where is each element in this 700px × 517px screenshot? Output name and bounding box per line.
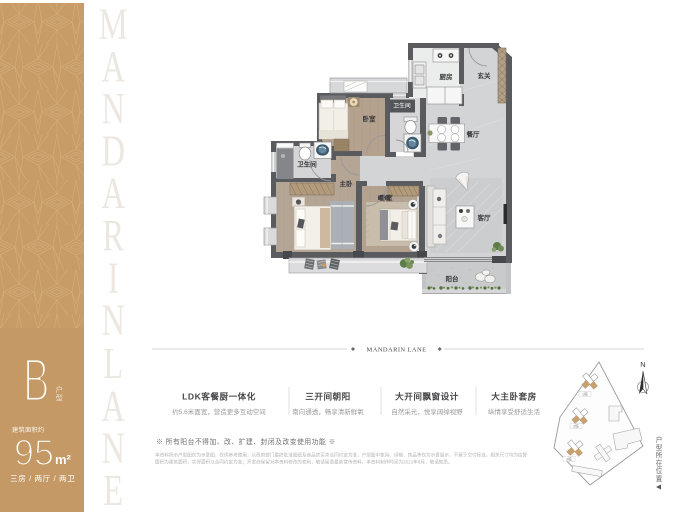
svg-text:B: B	[23, 345, 49, 414]
svg-text:客厅: 客厅	[477, 213, 492, 222]
svg-text:卫生间: 卫生间	[393, 102, 411, 110]
svg-text:A: A	[101, 43, 125, 91]
svg-text:纵情享受舒适生活: 纵情享受舒适生活	[488, 407, 541, 416]
svg-text:A: A	[101, 170, 125, 218]
svg-text:位: 位	[656, 466, 663, 475]
svg-text:三房 / 两厅 / 两卫: 三房 / 两厅 / 两卫	[10, 473, 75, 483]
svg-text:大开间飘窗设计: 大开间飘窗设计	[395, 391, 459, 402]
svg-text:卧室: 卧室	[380, 193, 394, 202]
svg-text:餐厅: 餐厅	[466, 130, 481, 139]
svg-text:阳台: 阳台	[446, 274, 460, 283]
svg-text:型: 型	[656, 443, 663, 452]
svg-text:三开间朝阳: 三开间朝阳	[305, 391, 350, 402]
svg-text:m²: m²	[55, 452, 72, 467]
svg-text:卧室: 卧室	[363, 114, 377, 123]
svg-text:M: M	[99, 1, 128, 49]
svg-text:※ 所有阳台不得加、改、扩建、封闭及改变使用功能 ※: ※ 所有阳台不得加、改、扩建、封闭及改变使用功能 ※	[156, 437, 336, 446]
svg-text:主卧: 主卧	[340, 179, 354, 188]
svg-text:I: I	[108, 255, 119, 303]
svg-text:95: 95	[14, 432, 54, 473]
svg-text:A: A	[101, 383, 125, 431]
svg-text:E: E	[103, 467, 123, 515]
svg-text:N: N	[640, 360, 645, 369]
svg-text:型: 型	[56, 394, 64, 403]
svg-text:R: R	[102, 212, 124, 260]
svg-text:大主卧套房: 大主卧套房	[491, 391, 536, 402]
svg-text:面积为建筑面积，实得面积以合同约定为准；开发商保留对本资料修: 面积为建筑面积，实得面积以合同约定为准；开发商保留对本资料修改的权利，敬请留意最…	[155, 459, 453, 466]
svg-text:南向通透，畅享清新鲜氧: 南向通透，畅享清新鲜氧	[292, 407, 364, 416]
svg-text:2栋: 2栋	[573, 424, 579, 429]
svg-text:自然采光，悦享阔绰视野: 自然采光，悦享阔绰视野	[391, 407, 463, 416]
svg-text:本资料所示户型图仅为示意图，仅供参考使用，以政府部门最终批准: 本资料所示户型图仅为示意图，仅供参考使用，以政府部门最终批准图纸及商品房买卖合同…	[155, 452, 528, 459]
svg-text:所: 所	[656, 451, 663, 460]
svg-text:玄关: 玄关	[478, 71, 492, 80]
svg-text:约5.6米面宽，营造更多互动空间: 约5.6米面宽，营造更多互动空间	[172, 407, 266, 416]
svg-text:户: 户	[656, 435, 663, 444]
svg-text:置: 置	[656, 475, 663, 483]
svg-text:户: 户	[56, 384, 64, 394]
svg-text:卫生间: 卫生间	[297, 160, 317, 169]
svg-text:3栋: 3栋	[566, 457, 572, 462]
svg-text:厨房: 厨房	[440, 72, 454, 81]
svg-text:1栋: 1栋	[582, 392, 588, 397]
svg-text:N: N	[101, 86, 125, 134]
svg-text:MANDARIN LANE: MANDARIN LANE	[367, 347, 427, 354]
svg-text:LDK客餐厨一体化: LDK客餐厨一体化	[182, 391, 256, 402]
svg-text:D: D	[101, 128, 125, 176]
svg-text:L: L	[103, 340, 123, 388]
svg-text:在: 在	[656, 458, 663, 467]
svg-text:N: N	[101, 425, 125, 473]
svg-text:N: N	[101, 297, 125, 345]
